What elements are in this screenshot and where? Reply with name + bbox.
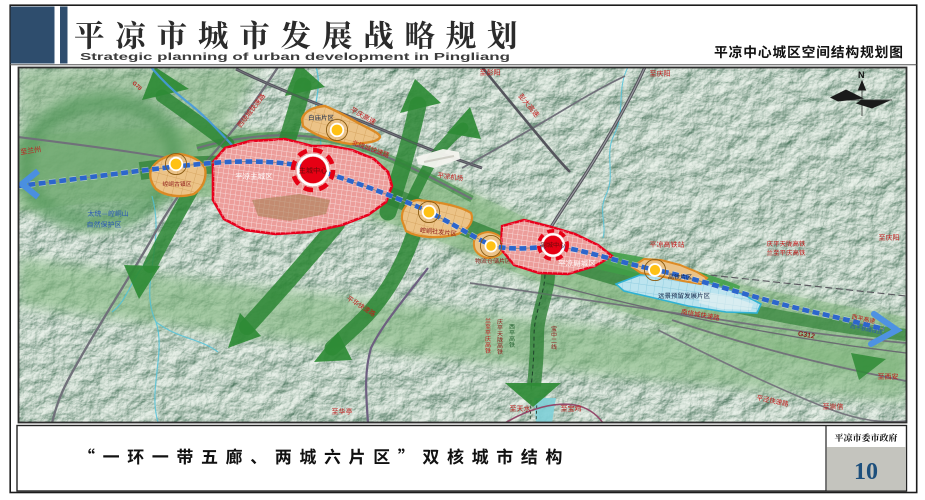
svg-text:10: 10 xyxy=(854,459,878,485)
svg-text:N: N xyxy=(858,70,865,80)
svg-text:Strategic planning of urban de: Strategic planning of urban development … xyxy=(80,52,510,63)
